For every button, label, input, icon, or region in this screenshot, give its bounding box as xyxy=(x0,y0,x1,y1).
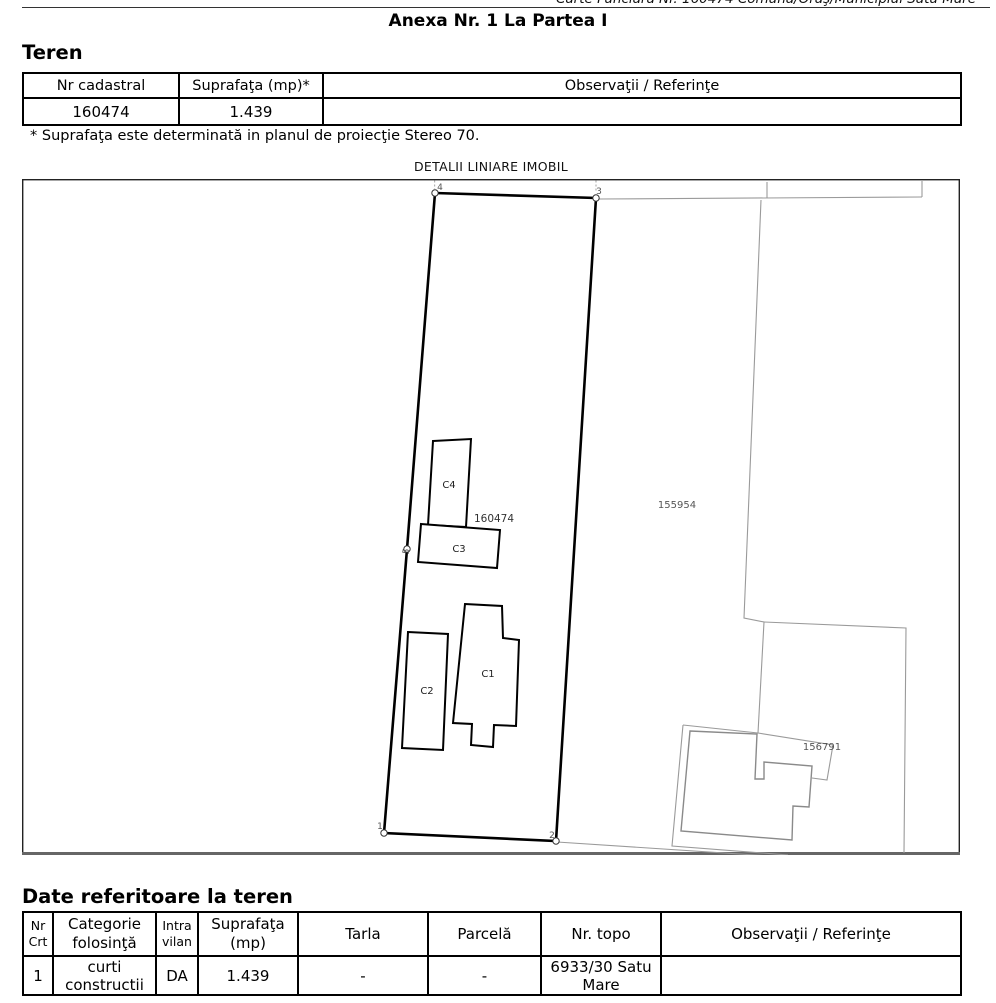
date-teren-data-row: 1 curti constructii DA 1.439 - - 6933/30… xyxy=(23,956,961,995)
col-observatii: Observaţii / Referinţe xyxy=(323,73,961,98)
cell-tarla: - xyxy=(298,956,428,995)
teren-table-data-row: 160474 1.439 xyxy=(23,98,961,125)
col-observatii-referinte: Observaţii / Referinţe xyxy=(661,912,961,956)
col-nr-crt-line2: Crt xyxy=(26,934,50,950)
col-tarla: Tarla xyxy=(298,912,428,956)
col-suprafata-mp: Suprafaţa (mp) xyxy=(198,912,298,956)
teren-table: Nr cadastral Suprafaţa (mp)* Observaţii … xyxy=(22,72,962,126)
cell-nr-cadastral: 160474 xyxy=(23,98,179,125)
vertex-4-label: 4 xyxy=(437,183,443,193)
col-suprafata: Suprafaţa (mp)* xyxy=(179,73,323,98)
col-intravilan-line2: vilan xyxy=(159,934,195,950)
date-teren-table: Nr Crt Categorie folosinţă Intra vilan S… xyxy=(22,911,962,996)
vertex-3-label: 3 xyxy=(596,187,602,197)
building-c1-label: C1 xyxy=(481,669,494,680)
cell-suprafata: 1.439 xyxy=(179,98,323,125)
cadastral-map: 160474 C4 C3 C2 C1 155954 156791 4 3 2 1… xyxy=(22,179,960,855)
cell-intravilan: DA xyxy=(156,956,198,995)
col-categorie-line2: folosinţă xyxy=(56,934,153,953)
col-suprafata-line1: Suprafaţa xyxy=(201,915,295,934)
teren-table-header-row: Nr cadastral Suprafaţa (mp)* Observaţii … xyxy=(23,73,961,98)
building-c2-label: C2 xyxy=(420,686,433,697)
col-categorie-line1: Categorie xyxy=(56,915,153,934)
col-nr-crt-line1: Nr xyxy=(26,918,50,934)
col-intravilan-line1: Intra xyxy=(159,918,195,934)
cell-observatii xyxy=(323,98,961,125)
parcel-number-label: 160474 xyxy=(474,513,514,525)
stereo70-footnote: * Suprafaţa este determinată in planul d… xyxy=(30,128,480,144)
neighbor-parcel-156791-label: 156791 xyxy=(803,742,841,753)
cell-parcela: - xyxy=(428,956,541,995)
col-categorie: Categorie folosinţă xyxy=(53,912,156,956)
cell-observatii-referinte xyxy=(661,956,961,995)
cadastral-document-page: Carte Funciara Nr. 160474 Comuna/Oraş/Mu… xyxy=(0,0,996,1003)
building-c4-label: C4 xyxy=(442,480,455,491)
cell-nr-crt: 1 xyxy=(23,956,53,995)
vertex-1-label: 1 xyxy=(377,822,383,832)
date-teren-heading: Date referitoare la teren xyxy=(22,885,293,908)
carte-funciara-header: Carte Funciara Nr. 160474 Comuna/Oraş/Mu… xyxy=(556,0,976,7)
building-c3-label: C3 xyxy=(452,544,465,555)
col-parcela: Parcelă xyxy=(428,912,541,956)
neighbor-parcel-155954-label: 155954 xyxy=(658,500,696,511)
cell-suprafata-mp: 1.439 xyxy=(198,956,298,995)
map-title: DETALII LINIARE IMOBIL xyxy=(22,159,960,174)
header-rule xyxy=(22,7,990,8)
col-suprafata-line2: (mp) xyxy=(201,934,295,953)
cell-categorie: curti constructii xyxy=(53,956,156,995)
col-nr-topo: Nr. topo xyxy=(541,912,661,956)
col-intravilan: Intra vilan xyxy=(156,912,198,956)
col-nr-cadastral: Nr cadastral xyxy=(23,73,179,98)
col-nr-crt: Nr Crt xyxy=(23,912,53,956)
cell-nr-topo: 6933/30 Satu Mare xyxy=(541,956,661,995)
teren-heading: Teren xyxy=(22,41,83,64)
vertex-2-label: 2 xyxy=(549,831,555,841)
date-teren-header-row: Nr Crt Categorie folosinţă Intra vilan S… xyxy=(23,912,961,956)
document-title: Anexa Nr. 1 La Partea I xyxy=(0,11,996,31)
